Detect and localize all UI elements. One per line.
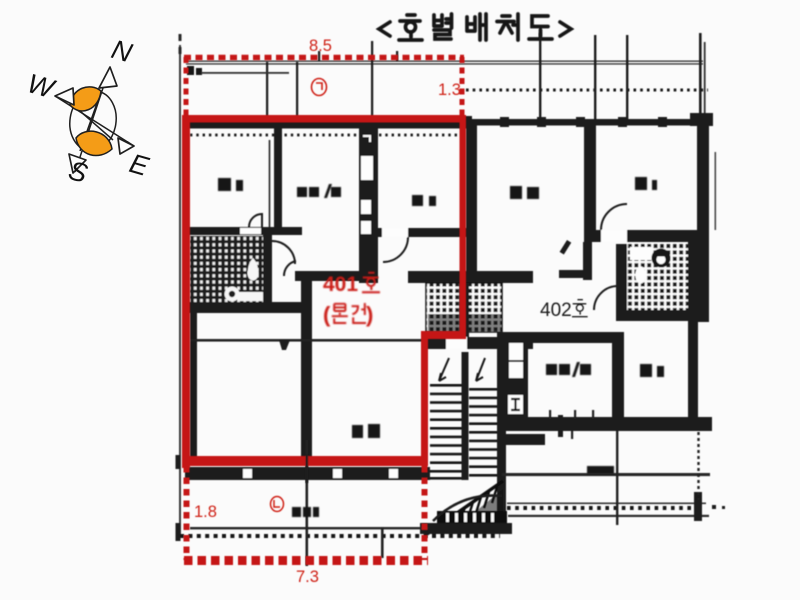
svg-text:(: ( [323,302,331,327]
svg-text:401: 401 [323,273,358,296]
svg-text:7.3: 7.3 [296,568,319,586]
svg-text:1.8: 1.8 [194,503,217,521]
svg-text:E: E [126,148,153,182]
svg-text:): ) [366,302,373,327]
svg-text:402: 402 [540,300,572,321]
svg-text:8.5: 8.5 [309,37,332,55]
svg-text:W: W [24,68,59,105]
svg-text:N: N [108,34,135,68]
svg-text:1.3: 1.3 [438,81,461,99]
svg-text:S: S [65,155,91,189]
